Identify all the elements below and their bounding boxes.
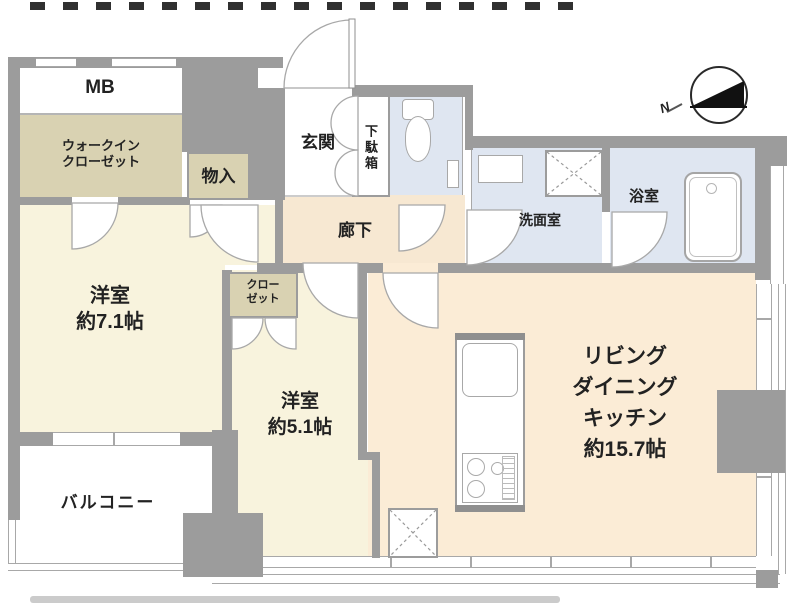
ldk-line1: リビング xyxy=(545,341,705,372)
wall xyxy=(602,148,610,212)
kitchen-sink xyxy=(462,343,518,397)
stove-grill xyxy=(502,456,515,500)
bedroom2-size: 約5.1帖 xyxy=(240,415,360,441)
wall xyxy=(465,85,473,150)
window-tick xyxy=(470,556,472,568)
stove-burner xyxy=(467,480,485,498)
window-tick xyxy=(113,432,115,446)
wall xyxy=(275,197,283,270)
refrigerator-space xyxy=(388,508,438,558)
window-tick xyxy=(630,556,632,568)
wall xyxy=(372,458,380,558)
bedroom2-name: 洋室 xyxy=(240,389,360,415)
ldk-line4: 約15.7帖 xyxy=(545,434,705,465)
kitchen-counter xyxy=(455,333,525,512)
wall xyxy=(8,432,53,446)
toilet-bowl xyxy=(405,116,431,162)
window-top-2 xyxy=(112,58,176,67)
window-tick xyxy=(710,556,712,568)
wall xyxy=(8,57,20,520)
wall xyxy=(756,570,778,588)
window-tick xyxy=(550,556,552,568)
closet-line2: ゼット xyxy=(230,292,296,306)
ldk-label: リビング ダイニング キッチン 約15.7帖 xyxy=(545,341,705,465)
wic-line1: ウォークイン xyxy=(30,138,172,154)
bedroom1-name: 洋室 xyxy=(40,283,180,309)
bathroom-label: 浴室 xyxy=(618,185,670,206)
closet-line1: クロー xyxy=(230,278,296,292)
entrance-step-line xyxy=(285,195,352,197)
toilet-counter xyxy=(447,160,459,188)
ldk-line3: キッチン xyxy=(545,403,705,434)
closet-label: クロー ゼット xyxy=(230,278,296,306)
kitchen-stove xyxy=(462,453,518,503)
balcony-rail-bottom xyxy=(8,563,212,571)
entrance-label: 玄関 xyxy=(286,128,350,153)
balcony-label: バルコニー xyxy=(36,488,180,513)
wall xyxy=(118,197,190,205)
wall xyxy=(473,136,787,148)
wall xyxy=(8,197,72,205)
entrance-door-leaf xyxy=(349,19,355,88)
compass-north-label: N xyxy=(658,99,672,116)
bathtub xyxy=(684,172,742,262)
shoe-cabinet-label: 下駄箱 xyxy=(361,107,380,189)
mb-label: MB xyxy=(60,77,140,99)
wall xyxy=(770,136,787,166)
wic-line2: クローゼット xyxy=(30,154,172,170)
kitchen-counter-cap-bottom xyxy=(455,505,525,512)
hallway-label: 廊下 xyxy=(325,216,385,241)
floor-plan: MB ウォークイン クローゼット 物入 玄関 下駄箱 廊下 洗面室 浴室 洋室 … xyxy=(0,0,800,603)
entrance-door-swing xyxy=(284,20,352,88)
window-bottom-outer xyxy=(212,574,780,584)
washroom-vanity xyxy=(478,155,523,183)
bedroom1-size: 約7.1帖 xyxy=(40,309,180,335)
window-tick xyxy=(756,318,772,320)
compass-north-icon xyxy=(667,67,747,123)
wall xyxy=(180,432,222,446)
bedroom2-floor-lower xyxy=(263,513,372,556)
wall xyxy=(182,62,258,152)
window-bedroom1-balcony xyxy=(53,432,180,446)
window-tick xyxy=(756,476,772,478)
cropped-caption-top xyxy=(30,2,575,10)
window-top-1 xyxy=(36,58,76,67)
pillar xyxy=(717,390,785,473)
storage-label: 物入 xyxy=(190,162,247,187)
walk-in-closet-label: ウォークイン クローゼット xyxy=(30,138,172,170)
bedroom2-door-gap xyxy=(307,263,358,273)
stove-burner xyxy=(467,458,485,476)
ldk-door-gap xyxy=(383,263,438,273)
cropped-strip-bottom xyxy=(30,596,560,603)
wall xyxy=(258,88,285,200)
pipe-space-right xyxy=(770,166,784,284)
bedroom2-label: 洋室 約5.1帖 xyxy=(240,389,360,441)
kitchen-counter-cap-top xyxy=(455,333,525,340)
window-bottom-inner xyxy=(263,556,756,568)
wall xyxy=(755,148,770,280)
bedroom1-label: 洋室 約7.1帖 xyxy=(40,283,180,335)
wall xyxy=(438,263,756,273)
ldk-line2: ダイニング xyxy=(545,372,705,403)
bathtub-faucet xyxy=(706,183,717,194)
laundry-space xyxy=(545,150,603,197)
pillar xyxy=(183,513,263,577)
washroom-label: 洗面室 xyxy=(506,210,574,230)
